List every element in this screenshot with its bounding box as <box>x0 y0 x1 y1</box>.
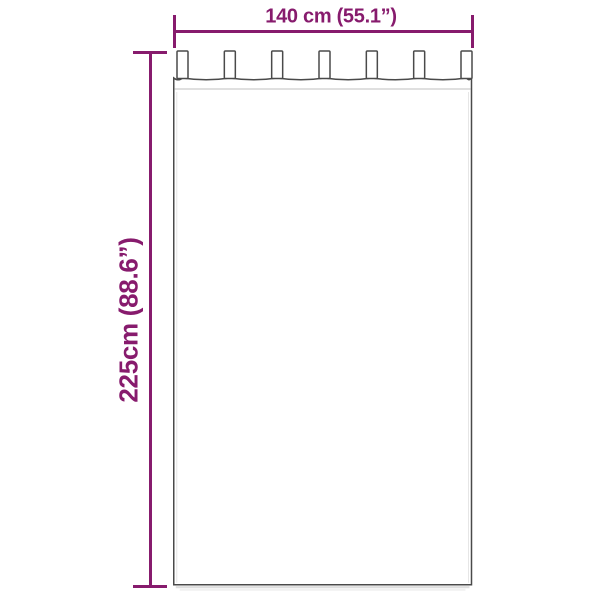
height-dimension-cap-top <box>133 51 167 54</box>
width-dimension-line <box>175 30 473 33</box>
width-dimension-cap-right <box>471 15 474 48</box>
curtain-tab <box>177 51 188 79</box>
curtain-body <box>174 78 472 585</box>
curtain-tab <box>224 51 235 79</box>
product-dimension-diagram: 140 cm (55.1”) 225cm (88.6”) <box>0 0 600 600</box>
height-dimension-line <box>149 52 152 587</box>
curtain-tab <box>319 51 330 79</box>
curtain-illustration <box>0 0 600 600</box>
curtain-tab <box>461 51 472 79</box>
width-dimension-cap-left <box>173 15 176 48</box>
height-dimension-cap-bottom <box>133 585 167 588</box>
curtain-tab <box>272 51 283 79</box>
height-dimension-label: 225cm (88.6”) <box>114 237 145 402</box>
width-dimension-label: 140 cm (55.1”) <box>265 6 396 29</box>
curtain-tab <box>366 51 377 79</box>
curtain-tab <box>414 51 425 79</box>
